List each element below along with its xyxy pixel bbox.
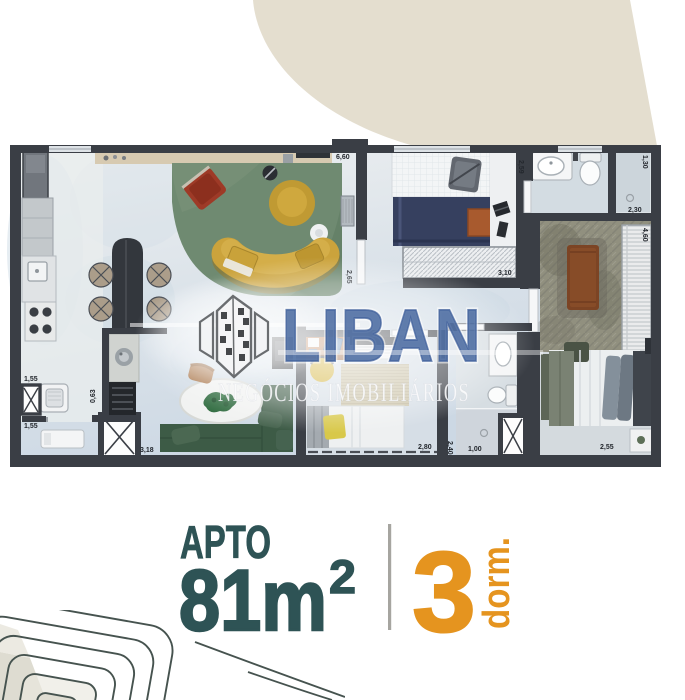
- svg-text:3,18: 3,18: [140, 447, 154, 454]
- svg-text:1,55: 1,55: [24, 423, 38, 430]
- svg-text:LIBAN: LIBAN: [282, 294, 482, 377]
- svg-text:2,30: 2,30: [628, 207, 642, 214]
- svg-text:3,10: 3,10: [498, 270, 512, 277]
- svg-text:4,60: 4,60: [641, 228, 648, 242]
- svg-text:2,55: 2,55: [600, 444, 614, 451]
- svg-text:2,59: 2,59: [517, 160, 524, 174]
- svg-text:2,80: 2,80: [418, 444, 432, 451]
- svg-text:1,55: 1,55: [24, 376, 38, 383]
- svg-text:1,30: 1,30: [641, 155, 648, 169]
- svg-text:3: 3: [412, 529, 476, 656]
- svg-text:6,60: 6,60: [336, 154, 350, 161]
- svg-text:NEGÓCIOS IMOBILIÁRIOS: NEGÓCIOS IMOBILIÁRIOS: [218, 378, 470, 407]
- svg-text:1,00: 1,00: [468, 446, 482, 453]
- svg-text:dorm.: dorm.: [476, 537, 518, 629]
- svg-text:0,63: 0,63: [90, 389, 97, 403]
- svg-text:2: 2: [329, 550, 356, 603]
- svg-text:2,40: 2,40: [446, 441, 453, 455]
- svg-text:81m: 81m: [179, 553, 327, 649]
